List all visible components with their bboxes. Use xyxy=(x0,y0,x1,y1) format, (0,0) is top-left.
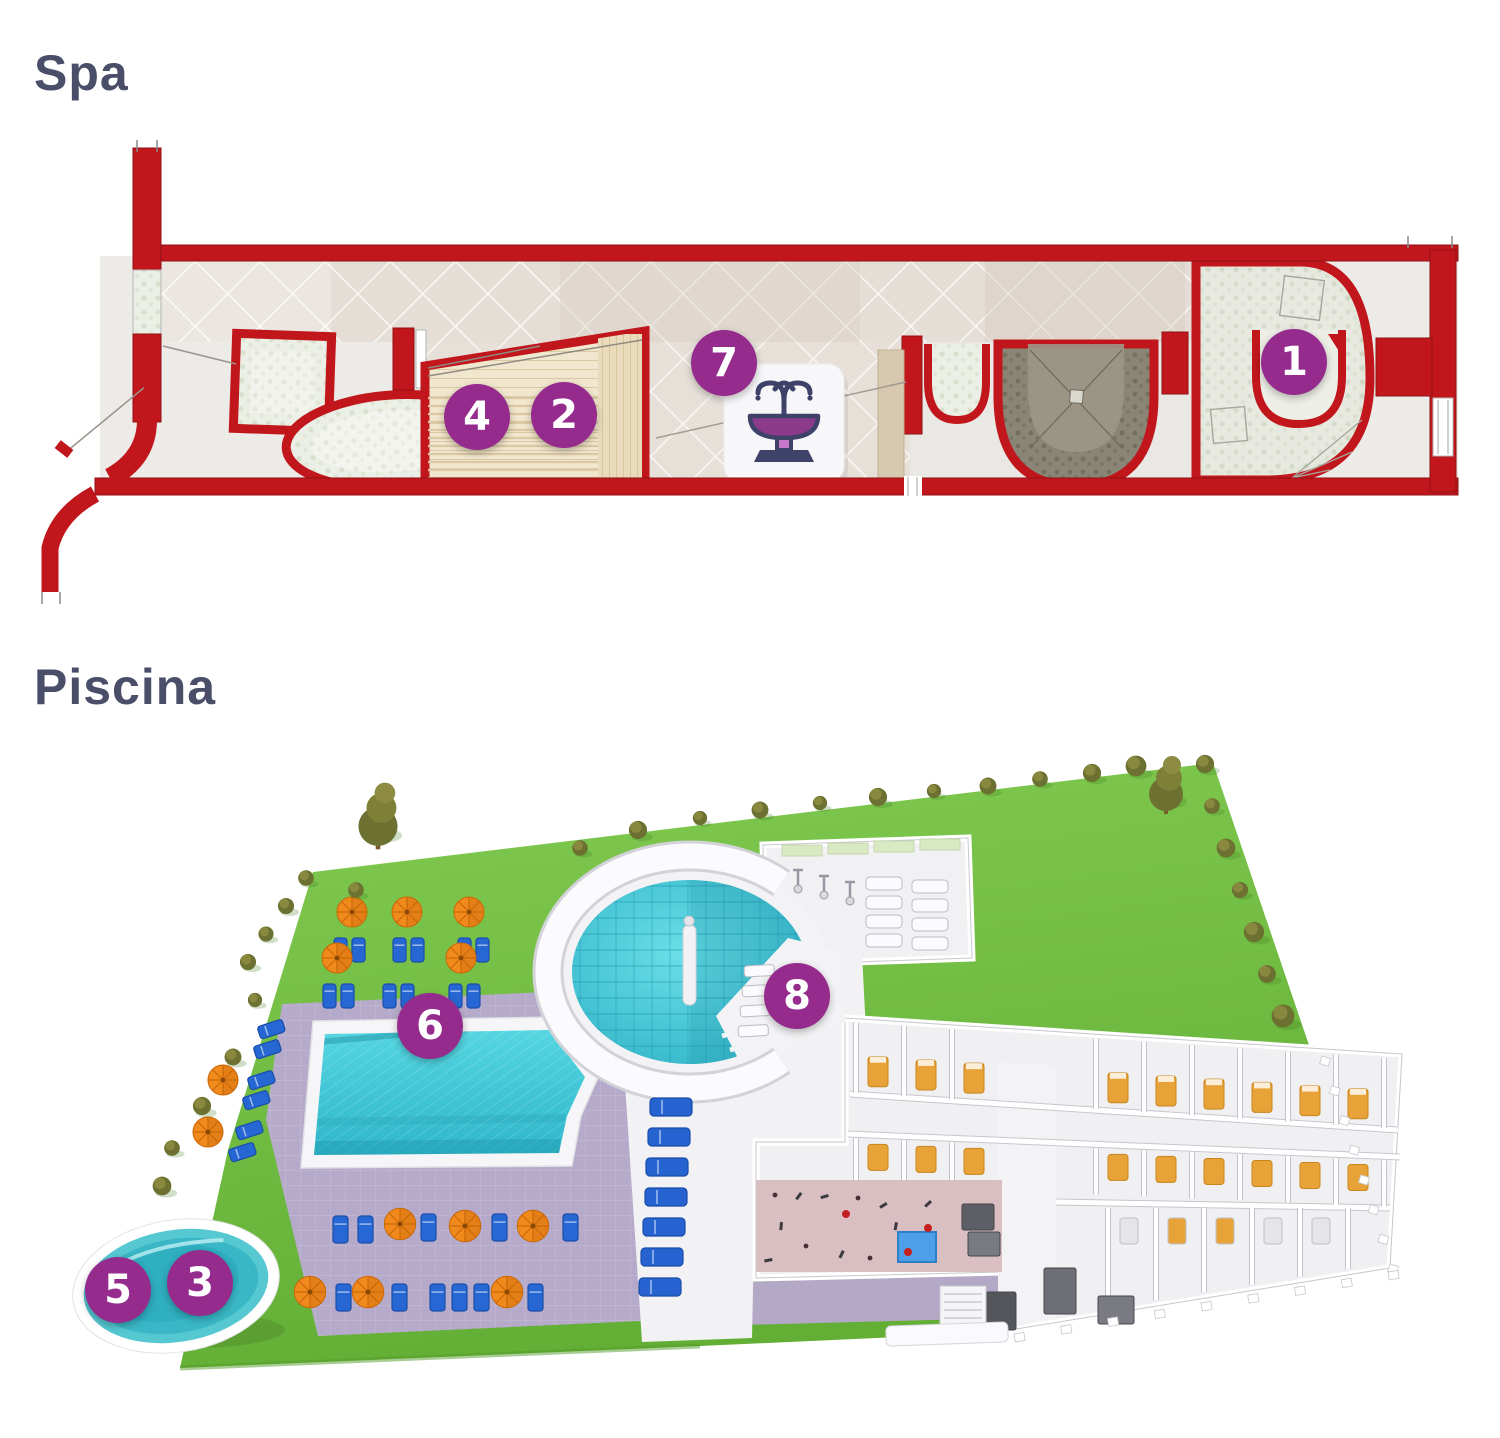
umbrella-icon xyxy=(454,897,484,927)
bed xyxy=(1120,1218,1138,1244)
tree-icon xyxy=(1083,764,1107,784)
bed xyxy=(1216,1218,1234,1244)
maps-canvas xyxy=(0,0,1500,1438)
umbrella-icon xyxy=(392,897,422,927)
lounger-icon xyxy=(639,1278,681,1296)
skylight xyxy=(782,845,822,856)
tree-icon xyxy=(693,811,712,827)
lounger-icon xyxy=(333,1216,348,1243)
lounger-icon xyxy=(866,934,902,947)
lounger-icon xyxy=(474,1284,489,1311)
lounger-icon xyxy=(430,1284,445,1311)
tree-icon xyxy=(629,821,653,841)
lounger-icon xyxy=(421,1214,436,1241)
tree-icon xyxy=(1196,755,1220,775)
tree-icon xyxy=(225,1049,247,1068)
lounger-icon xyxy=(528,1284,543,1311)
umbrella-icon xyxy=(491,1276,523,1308)
tree-icon xyxy=(752,802,774,821)
tree-icon xyxy=(193,1097,217,1117)
bed xyxy=(1264,1218,1282,1244)
lounger-icon xyxy=(336,1284,351,1311)
umbrella-icon xyxy=(337,897,367,927)
tree-icon xyxy=(927,784,946,800)
bed xyxy=(1300,1162,1320,1188)
lounger-icon xyxy=(563,1214,578,1241)
bed xyxy=(964,1148,984,1174)
lounger-icon xyxy=(392,1284,407,1311)
locker xyxy=(1044,1268,1076,1314)
umbrella-icon xyxy=(352,1276,384,1308)
skylight xyxy=(828,843,868,854)
lounger-icon xyxy=(641,1248,683,1266)
tree-icon xyxy=(258,926,278,943)
umbrella-icon xyxy=(322,943,352,973)
tree-icon xyxy=(240,954,261,972)
lounger-icon xyxy=(912,918,948,931)
tree-icon xyxy=(248,993,267,1009)
tree-icon xyxy=(1126,756,1153,779)
tree-icon xyxy=(164,1140,184,1157)
pool-pier xyxy=(683,925,696,1005)
indoor-pool xyxy=(898,1232,936,1262)
lounger-icon xyxy=(643,1218,685,1236)
lounger-icon xyxy=(323,984,336,1008)
piscina-map xyxy=(63,755,1402,1368)
lounger-icon xyxy=(393,938,406,962)
umbrella-icon xyxy=(208,1065,238,1095)
bed xyxy=(1204,1158,1224,1184)
lounger-icon xyxy=(383,984,396,1008)
tree-icon xyxy=(358,783,402,850)
map-marker-5[interactable]: 5 xyxy=(85,1257,151,1323)
lounger-icon xyxy=(650,1098,692,1116)
map-marker-2[interactable]: 2 xyxy=(531,382,597,448)
umbrella-icon xyxy=(193,1117,223,1147)
lounger-icon xyxy=(912,880,948,893)
tree-icon xyxy=(278,898,299,916)
umbrella-icon xyxy=(449,1210,481,1242)
bed xyxy=(1252,1160,1272,1186)
lounger-icon xyxy=(646,1158,688,1176)
lounger-icon xyxy=(866,915,902,928)
lounger-icon xyxy=(358,1216,373,1243)
bed xyxy=(916,1146,936,1172)
bed xyxy=(1108,1154,1128,1180)
lounger-icon xyxy=(352,938,365,962)
bed xyxy=(1312,1218,1330,1244)
map-marker-7[interactable]: 7 xyxy=(691,330,757,396)
umbrella-icon xyxy=(294,1276,326,1308)
lounger-icon xyxy=(452,1284,467,1311)
tree-icon xyxy=(813,796,832,812)
lounger-icon xyxy=(467,984,480,1008)
lounger-icon xyxy=(912,899,948,912)
lounger-icon xyxy=(648,1128,690,1146)
locker xyxy=(968,1232,1000,1256)
skylight xyxy=(920,839,960,850)
map-marker-6[interactable]: 6 xyxy=(397,993,463,1059)
lounger-icon xyxy=(738,1024,769,1037)
lounger-icon xyxy=(411,938,424,962)
map-marker-3[interactable]: 3 xyxy=(167,1250,233,1316)
skylight xyxy=(874,841,914,852)
tree-icon xyxy=(869,788,893,808)
umbrella-icon xyxy=(384,1208,416,1240)
tree-icon xyxy=(1032,771,1052,788)
map-marker-4[interactable]: 4 xyxy=(444,384,510,450)
tree-icon xyxy=(980,778,1002,797)
umbrella-icon xyxy=(446,943,476,973)
lounger-icon xyxy=(866,896,902,909)
lounger-icon xyxy=(492,1214,507,1241)
bed xyxy=(868,1144,888,1170)
bed xyxy=(1156,1156,1176,1182)
locker xyxy=(962,1204,994,1230)
lounger-icon xyxy=(912,937,948,950)
map-marker-8[interactable]: 8 xyxy=(764,963,830,1029)
umbrella-icon xyxy=(517,1210,549,1242)
bed xyxy=(1168,1218,1186,1244)
tree-icon xyxy=(153,1177,177,1198)
lounger-icon xyxy=(866,877,902,890)
lounger-icon xyxy=(476,938,489,962)
map-marker-1[interactable]: 1 xyxy=(1261,329,1327,395)
lounger-icon xyxy=(645,1188,687,1206)
page: Spa Piscina xyxy=(0,0,1500,1438)
lounger-icon xyxy=(341,984,354,1008)
